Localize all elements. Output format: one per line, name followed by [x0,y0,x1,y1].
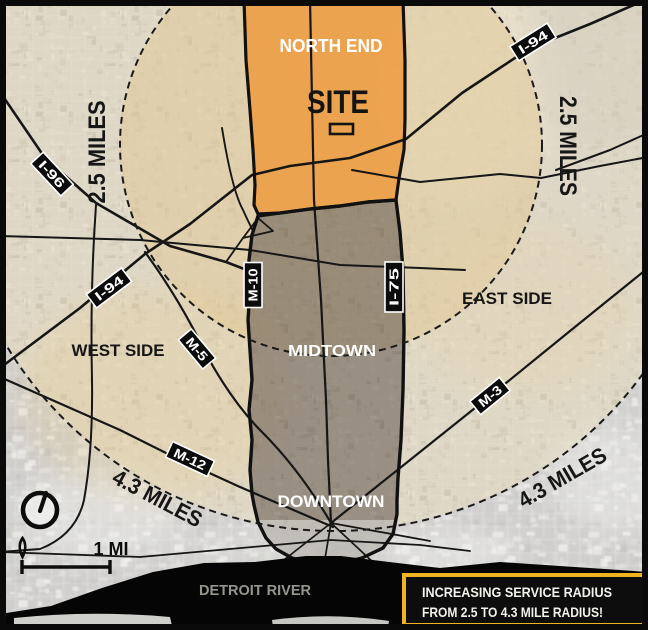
svg-text:2.5 MILES: 2.5 MILES [84,101,111,204]
svg-text:MIDTOWN: MIDTOWN [288,343,376,360]
svg-text:DETROIT RIVER: DETROIT RIVER [199,582,311,599]
svg-text:SITE: SITE [307,84,369,120]
svg-text:WEST SIDE: WEST SIDE [72,341,165,360]
svg-text:2.5 MILES: 2.5 MILES [554,96,581,196]
svg-text:NORTH END: NORTH END [280,36,383,56]
svg-text:1 MI: 1 MI [93,539,128,559]
svg-text:M-10: M-10 [246,269,261,302]
svg-text:DOWNTOWN: DOWNTOWN [278,492,385,511]
svg-text:I-75: I-75 [387,268,402,306]
svg-text:FROM 2.5 TO 4.3 MILE RADIUS!: FROM 2.5 TO 4.3 MILE RADIUS! [422,604,603,620]
svg-text:EAST SIDE: EAST SIDE [462,289,552,308]
svg-text:INCREASING SERVICE RADIUS: INCREASING SERVICE RADIUS [422,584,612,600]
